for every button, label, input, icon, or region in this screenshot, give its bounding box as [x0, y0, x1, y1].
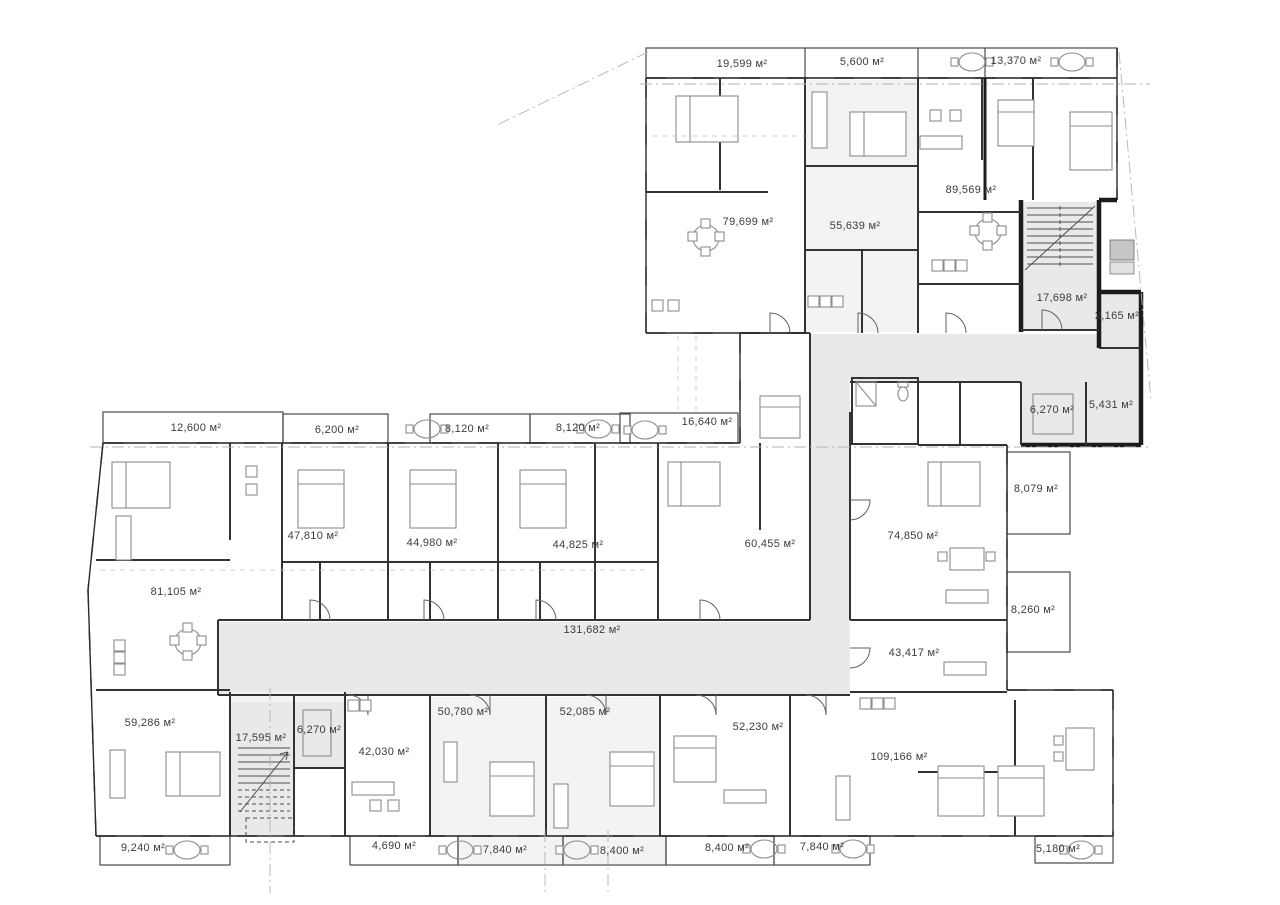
area-label-terrace-8120a: 8,120 м² — [445, 423, 489, 435]
area-label-unit-74850: 74,850 м² — [888, 530, 939, 542]
area-label-unit-89569: 89,569 м² — [946, 184, 997, 196]
area-label-terrace-8120b: 8,120 м² — [556, 422, 600, 434]
elevator-icons — [303, 394, 1073, 756]
area-label-elev-6270-low: 6,270 м² — [297, 724, 341, 736]
area-label-unit-44825: 44,825 м² — [553, 539, 604, 551]
area-label-elev-6270-up: 6,270 м² — [1030, 404, 1074, 416]
area-label-unit-55639: 55,639 м² — [830, 220, 881, 232]
area-label-corridor: 131,682 м² — [563, 624, 620, 636]
area-label-unit-60455: 60,455 м² — [745, 538, 796, 550]
area-label-unit-52230: 52,230 м² — [733, 721, 784, 733]
area-label-unit-50780: 50,780 м² — [438, 706, 489, 718]
area-label-terrace-79699: 19,599 м² — [717, 58, 768, 70]
area-label-terrace-13370: 13,370 м² — [991, 55, 1042, 67]
area-label-room-5431: 5,431 м² — [1089, 399, 1133, 411]
area-label-unit-109166: 109,166 м² — [870, 751, 927, 763]
area-label-terrace-16640: 16,640 м² — [682, 416, 733, 428]
area-label-unit-43417: 43,417 м² — [889, 647, 940, 659]
area-label-balcony-7840a: 7,840 м² — [483, 844, 527, 856]
floor-plan-drawing — [0, 0, 1280, 905]
area-label-room-2165: 2,165 м² — [1095, 310, 1139, 322]
equipment-box-icon — [1110, 240, 1134, 274]
area-label-unit-59286: 59,286 м² — [125, 717, 176, 729]
floor-plan-page: 19,599 м² 5,600 м² 13,370 м² 79,699 м² 5… — [0, 0, 1280, 905]
area-label-balcony-4690: 4,690 м² — [372, 840, 416, 852]
area-label-unit-47810: 47,810 м² — [288, 530, 339, 542]
terrace-outlines — [103, 48, 1117, 443]
area-label-stair-17595: 17,595 м² — [236, 732, 287, 744]
area-label-unit-42030: 42,030 м² — [359, 746, 410, 758]
area-label-unit-52085: 52,085 м² — [560, 706, 611, 718]
area-label-terrace-6200: 6,200 м² — [315, 424, 359, 436]
area-label-unit-44980: 44,980 м² — [407, 537, 458, 549]
area-label-unit-81105: 81,105 м² — [151, 586, 202, 598]
area-label-balcony-9240: 9,240 м² — [121, 842, 165, 854]
area-label-balcony-8079: 8,079 м² — [1014, 483, 1058, 495]
area-label-terrace-12600: 12,600 м² — [171, 422, 222, 434]
area-label-stair-17698: 17,698 м² — [1037, 292, 1088, 304]
area-label-balcony-8260: 8,260 м² — [1011, 604, 1055, 616]
area-label-balcony-7840b: 7,840 м² — [800, 841, 844, 853]
area-label-unit-79699: 79,699 м² — [723, 216, 774, 228]
area-label-balcony-5180: 5,180 м² — [1036, 843, 1080, 855]
area-label-terrace-55639: 5,600 м² — [840, 56, 884, 68]
area-label-balcony-8400b: 8,400 м² — [705, 842, 749, 854]
area-label-balcony-8400a: 8,400 м² — [600, 845, 644, 857]
bathroom-icons — [856, 382, 908, 406]
